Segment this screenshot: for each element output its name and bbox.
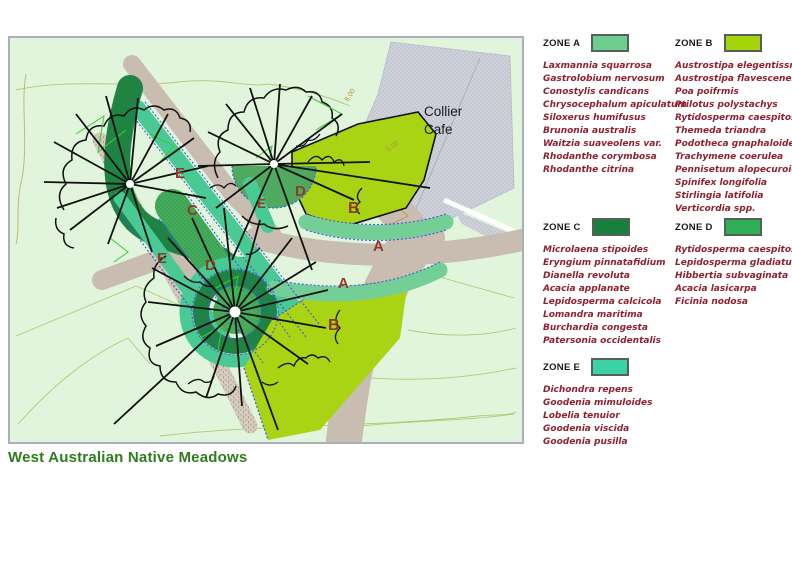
species-item: Lepidosperma gladiatum [675, 257, 792, 270]
species-item: Rytidosperma caespitosum [675, 244, 792, 257]
species-item: Chrysocephalum apiculatum [543, 99, 673, 112]
species-item: Hibbertia subvaginata [675, 270, 792, 283]
zone-a-swatch [591, 34, 629, 52]
species-item: Acacia applanate [543, 283, 673, 296]
map-label-a2: A [338, 275, 349, 292]
species-item: Siloxerus humifusus [543, 112, 673, 125]
species-item: Eryngium pinnatafidium [543, 257, 673, 270]
species-item: Lomandra maritima [543, 309, 673, 322]
species-item: Themeda triandra [675, 125, 792, 138]
species-item: Burchardia congesta [543, 322, 673, 335]
zone-d-swatch [724, 218, 762, 236]
species-item: Dianella revoluta [543, 270, 673, 283]
legend-zone-d: ZONE D Rytidosperma caespitosum Lepidosp… [675, 218, 792, 309]
cafe-label-line2: Cafe [424, 122, 453, 137]
species-item: Ficinia nodosa [675, 296, 792, 309]
zone-c-species-list: Microlaena stipoides Eryngium pinnatafid… [543, 244, 673, 348]
map-label-b2: B [328, 317, 340, 334]
species-item: Podotheca gnaphaloides [675, 138, 792, 151]
species-item: Austrostipa elegentissm [675, 60, 792, 73]
map-label-b1: B [348, 200, 360, 217]
zone-b-name: ZONE B [675, 38, 713, 49]
species-item: Conostylis candicans [543, 86, 673, 99]
species-item: Patersonia occidentalis [543, 335, 673, 348]
zone-b-species-list: Austrostipa elegentissm Austrostipa flav… [675, 60, 792, 216]
zone-a-name: ZONE A [543, 38, 580, 49]
legend-zone-c: ZONE C Microlaena stipoides Eryngium pin… [543, 218, 673, 348]
species-item: Trachymene coerulea [675, 151, 792, 164]
species-item: Waitzia suaveolens var. [543, 138, 673, 151]
zone-c-swatch [592, 218, 630, 236]
species-item: Spinifex longifolia [675, 177, 792, 190]
zone-e-species-list: Dichondra repens Goodenia mimuloides Lob… [543, 384, 673, 449]
zone-e-name: ZONE E [543, 362, 580, 373]
zone-d-name: ZONE D [675, 222, 713, 233]
zone-b-swatch [724, 34, 762, 52]
legend-zone-a: ZONE A Laxmannia squarrosa Gastrolobium … [543, 34, 673, 177]
map-label-d1: D [205, 257, 216, 274]
species-item: Goodenia mimuloides [543, 397, 673, 410]
site-plan-svg: E C E D E D B A A B Collier Cafe 8.00 5.… [10, 38, 522, 442]
map-label-a1: A [373, 238, 384, 255]
species-item: Acacia lasicarpa [675, 283, 792, 296]
cafe-label-line1: Collier [424, 104, 463, 119]
map-label-e3: E [257, 196, 266, 211]
species-item: Lepidosperma calcicola [543, 296, 673, 309]
species-item: Lobelia tenuior [543, 410, 673, 423]
species-item: Ptilotus polystachys [675, 99, 792, 112]
map-label-d2: D [295, 183, 306, 200]
species-item: Goodenia pusilla [543, 436, 673, 449]
species-item: Rhodanthe citrina [543, 164, 673, 177]
page: E C E D E D B A A B Collier Cafe 8.00 5.… [0, 0, 792, 576]
species-item: Stirlingia latifolia [675, 190, 792, 203]
species-item: Rytidosperma caespitosum [675, 112, 792, 125]
zone-e-swatch [591, 358, 629, 376]
species-item: Gastrolobium nervosum [543, 73, 673, 86]
map-label-c: C [187, 202, 198, 219]
species-item: Pennisetum alopecuroides [675, 164, 792, 177]
zone-a-species-list: Laxmannia squarrosa Gastrolobium nervosu… [543, 60, 673, 177]
legend-zone-b: ZONE B Austrostipa elegentissm Austrosti… [675, 34, 792, 216]
page-title: West Australian Native Meadows [8, 449, 247, 466]
species-item: Verticordia spp. [675, 203, 792, 216]
zone-c-name: ZONE C [543, 222, 581, 233]
species-item: Dichondra repens [543, 384, 673, 397]
species-item: Goodenia viscida [543, 423, 673, 436]
species-item: Poa poifrmis [675, 86, 792, 99]
zone-d-species-list: Rytidosperma caespitosum Lepidosperma gl… [675, 244, 792, 309]
species-item: Laxmannia squarrosa [543, 60, 673, 73]
map-label-e1: E [175, 165, 185, 182]
site-plan-map: E C E D E D B A A B Collier Cafe 8.00 5.… [8, 36, 524, 444]
map-label-e2: E [157, 250, 167, 267]
legend-zone-e: ZONE E Dichondra repens Goodenia mimuloi… [543, 358, 673, 449]
species-item: Brunonia australis [543, 125, 673, 138]
species-item: Rhodanthe corymbosa [543, 151, 673, 164]
species-item: Austrostipa flavescenes [675, 73, 792, 86]
species-item: Microlaena stipoides [543, 244, 673, 257]
